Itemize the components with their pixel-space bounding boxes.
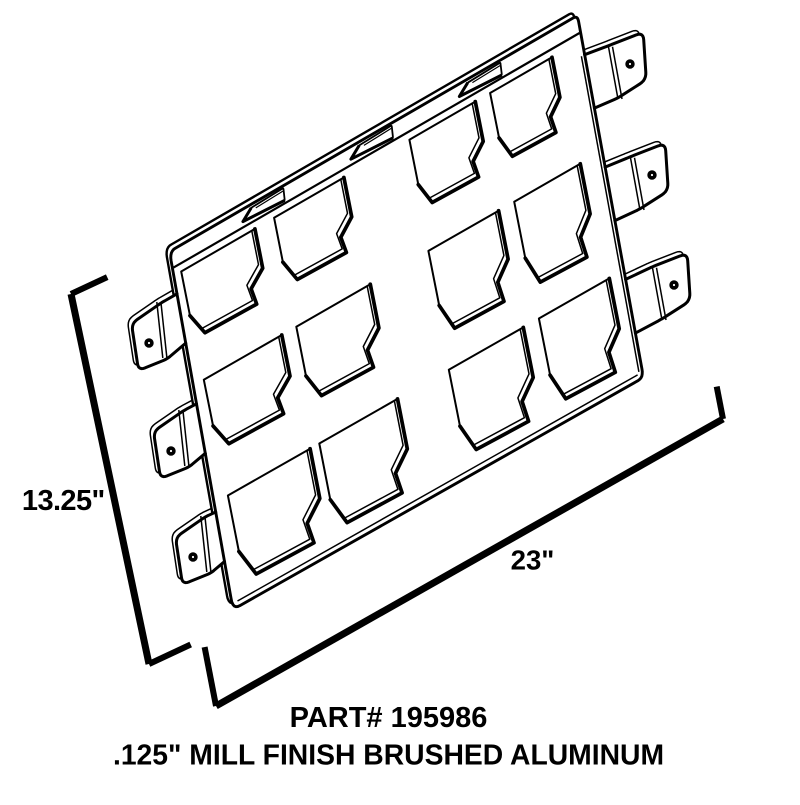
svg-text:.125" MILL FINISH BRUSHED ALUM: .125" MILL FINISH BRUSHED ALUMINUM xyxy=(113,739,664,771)
svg-text:PART# 195986: PART# 195986 xyxy=(290,702,488,734)
svg-text:13.25": 13.25" xyxy=(22,485,105,517)
svg-text:23": 23" xyxy=(511,545,555,576)
